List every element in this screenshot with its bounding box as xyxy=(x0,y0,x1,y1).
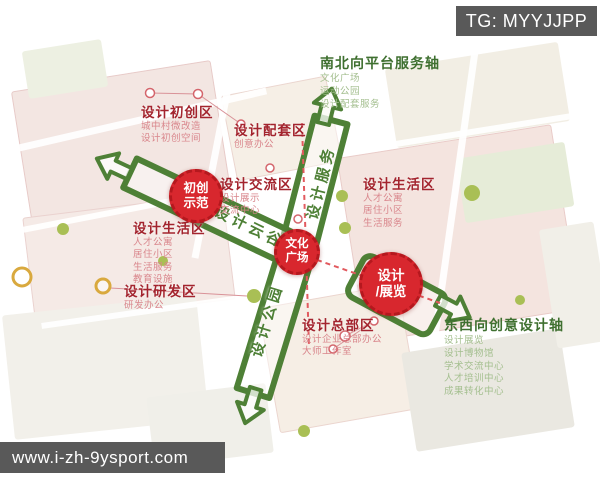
list-item: 生活服务 xyxy=(133,262,206,274)
poi-dot xyxy=(146,89,155,98)
green-dot xyxy=(336,190,348,202)
list-item: 文化广场 xyxy=(320,73,440,86)
list-item: 设计企业总部办公 xyxy=(302,334,382,346)
badge-culture-plaza: 文化 广场 xyxy=(274,229,320,275)
poi-dot xyxy=(266,164,274,172)
axis-items: 文化广场运动公园设计配套服务 xyxy=(320,73,440,111)
list-item: 学术交流中心 xyxy=(444,361,564,374)
green-dot xyxy=(247,289,261,303)
axis-items: 设计展览设计博物馆学术交流中心人才培训中心成果转化中心 xyxy=(444,335,564,399)
zone-items: 研发办公 xyxy=(124,300,197,312)
list-item: 设计博物馆 xyxy=(444,348,564,361)
badge-line: 广场 xyxy=(286,252,309,266)
list-item: 研发办公 xyxy=(124,300,197,312)
axis-north-south: 南北向平台服务轴 文化广场运动公园设计配套服务 xyxy=(320,53,440,111)
green-dot xyxy=(515,295,525,305)
zone-title: 设计生活区 xyxy=(363,173,436,193)
zone-items: 城中村微改造设计初创空间 xyxy=(141,121,214,146)
list-item: 设计展览 xyxy=(444,335,564,348)
badge-line: 设计 xyxy=(378,268,405,284)
list-item: 人才培训中心 xyxy=(444,373,564,386)
badge-line: /展览 xyxy=(376,284,407,300)
zone-title: 设计初创区 xyxy=(141,101,214,121)
zone-items: 创意办公 xyxy=(234,139,307,151)
zone-items: 人才公寓居住小区生活服务 xyxy=(363,193,436,230)
zone-startup: 设计初创区 城中村微改造设计初创空间 xyxy=(141,101,214,146)
green-dot xyxy=(298,425,310,437)
poi-ring xyxy=(13,268,31,286)
list-item: 居住小区 xyxy=(363,205,436,217)
list-item: 大师工作室 xyxy=(302,346,382,358)
zone-items: 人才公寓居住小区生活服务教育设施 xyxy=(133,237,206,286)
zone-title: 设计研发区 xyxy=(124,280,197,300)
zone-living-east: 设计生活区 人才公寓居住小区生活服务 xyxy=(363,173,436,230)
list-item: 城中村微改造 xyxy=(141,121,214,133)
website-watermark: www.i-zh-9ysport.com xyxy=(0,442,225,473)
planning-map: 设计服务 设计云谷 设计公园 设计初创区 城中村微改造设计初创空间 设计配套区 … xyxy=(0,0,600,480)
badge-design-exhibition: 设计 /展览 xyxy=(359,252,423,316)
badge-line: 文化 xyxy=(286,238,309,252)
list-item: 成果转化中心 xyxy=(444,386,564,399)
list-item: 设计展示 xyxy=(220,193,293,205)
zone-title: 设计交流区 xyxy=(220,173,293,193)
telegram-tag: TG: MYYJJPP xyxy=(456,6,597,36)
zone-headquarters: 设计总部区 设计企业总部办公大师工作室 xyxy=(302,314,382,359)
green-dot xyxy=(464,185,480,201)
zone-rnd: 设计研发区 研发办公 xyxy=(124,280,197,312)
zone-exchange: 设计交流区 设计展示交流中心 xyxy=(220,173,293,218)
badge-startup-demo: 初创 示范 xyxy=(169,169,223,223)
list-item: 运动公园 xyxy=(320,86,440,99)
zone-title: 设计配套区 xyxy=(234,119,307,139)
poi-dot xyxy=(194,90,203,99)
badge-line: 初创 xyxy=(183,181,208,196)
list-item: 居住小区 xyxy=(133,249,206,261)
zone-living-west: 设计生活区 人才公寓居住小区生活服务教育设施 xyxy=(133,217,206,286)
zone-title: 设计总部区 xyxy=(302,314,382,334)
badge-line: 示范 xyxy=(183,196,208,211)
list-item: 生活服务 xyxy=(363,218,436,230)
list-item: 设计初创空间 xyxy=(141,133,214,145)
zone-support: 设计配套区 创意办公 xyxy=(234,119,307,151)
list-item: 人才公寓 xyxy=(133,237,206,249)
axis-east-west: 东西向创意设计轴 设计展览设计博物馆学术交流中心人才培训中心成果转化中心 xyxy=(444,315,564,399)
axis-title: 南北向平台服务轴 xyxy=(320,53,440,73)
green-dot xyxy=(339,222,351,234)
list-item: 创意办公 xyxy=(234,139,307,151)
axis-title: 东西向创意设计轴 xyxy=(444,315,564,335)
list-item: 设计配套服务 xyxy=(320,99,440,112)
zone-items: 设计企业总部办公大师工作室 xyxy=(302,334,382,359)
list-item: 交流中心 xyxy=(220,205,293,217)
zone-items: 设计展示交流中心 xyxy=(220,193,293,218)
green-dot xyxy=(57,223,69,235)
list-item: 人才公寓 xyxy=(363,193,436,205)
poi-ring xyxy=(96,279,110,293)
